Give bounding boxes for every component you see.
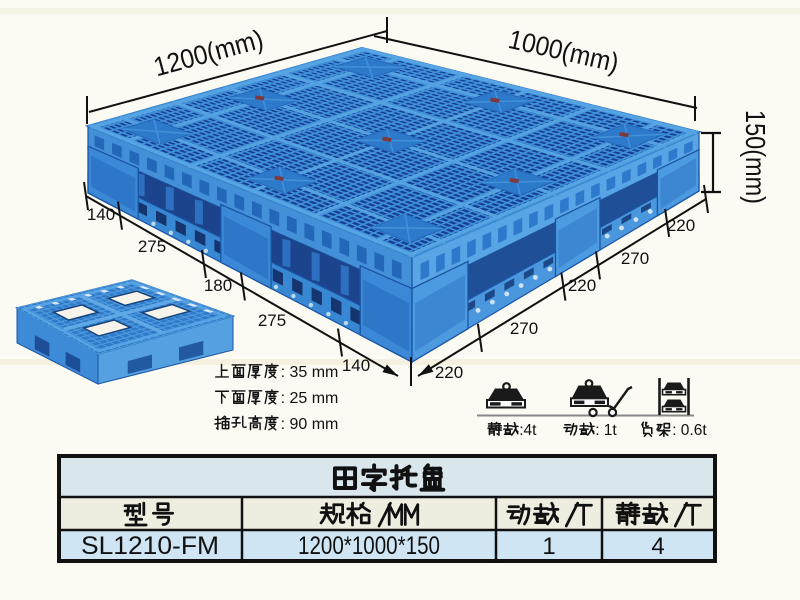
svg-text::4t: :4t xyxy=(519,422,537,439)
svg-text:275: 275 xyxy=(138,237,166,256)
svg-text:220: 220 xyxy=(568,276,596,295)
svg-text:: 1t: : 1t xyxy=(595,422,617,439)
svg-text:140: 140 xyxy=(342,356,370,375)
svg-text:: 35 mm: : 35 mm xyxy=(281,364,339,381)
svg-text:220: 220 xyxy=(435,363,463,382)
svg-text:1: 1 xyxy=(542,533,555,560)
svg-text:4: 4 xyxy=(651,533,664,560)
svg-text:1200*1000*150: 1200*1000*150 xyxy=(298,532,440,560)
svg-text:150(mm): 150(mm) xyxy=(740,110,771,204)
svg-text:: 25 mm: : 25 mm xyxy=(281,390,339,407)
svg-text:: 0.6t: : 0.6t xyxy=(672,422,707,439)
svg-text:270: 270 xyxy=(621,249,649,268)
svg-text:140: 140 xyxy=(87,205,115,224)
svg-text:270: 270 xyxy=(510,319,538,338)
svg-text:SL1210-FM: SL1210-FM xyxy=(81,532,219,560)
svg-text:180: 180 xyxy=(204,276,232,295)
svg-text:220: 220 xyxy=(667,216,695,235)
svg-text:: 90 mm: : 90 mm xyxy=(281,416,339,433)
svg-text:275: 275 xyxy=(258,311,286,330)
